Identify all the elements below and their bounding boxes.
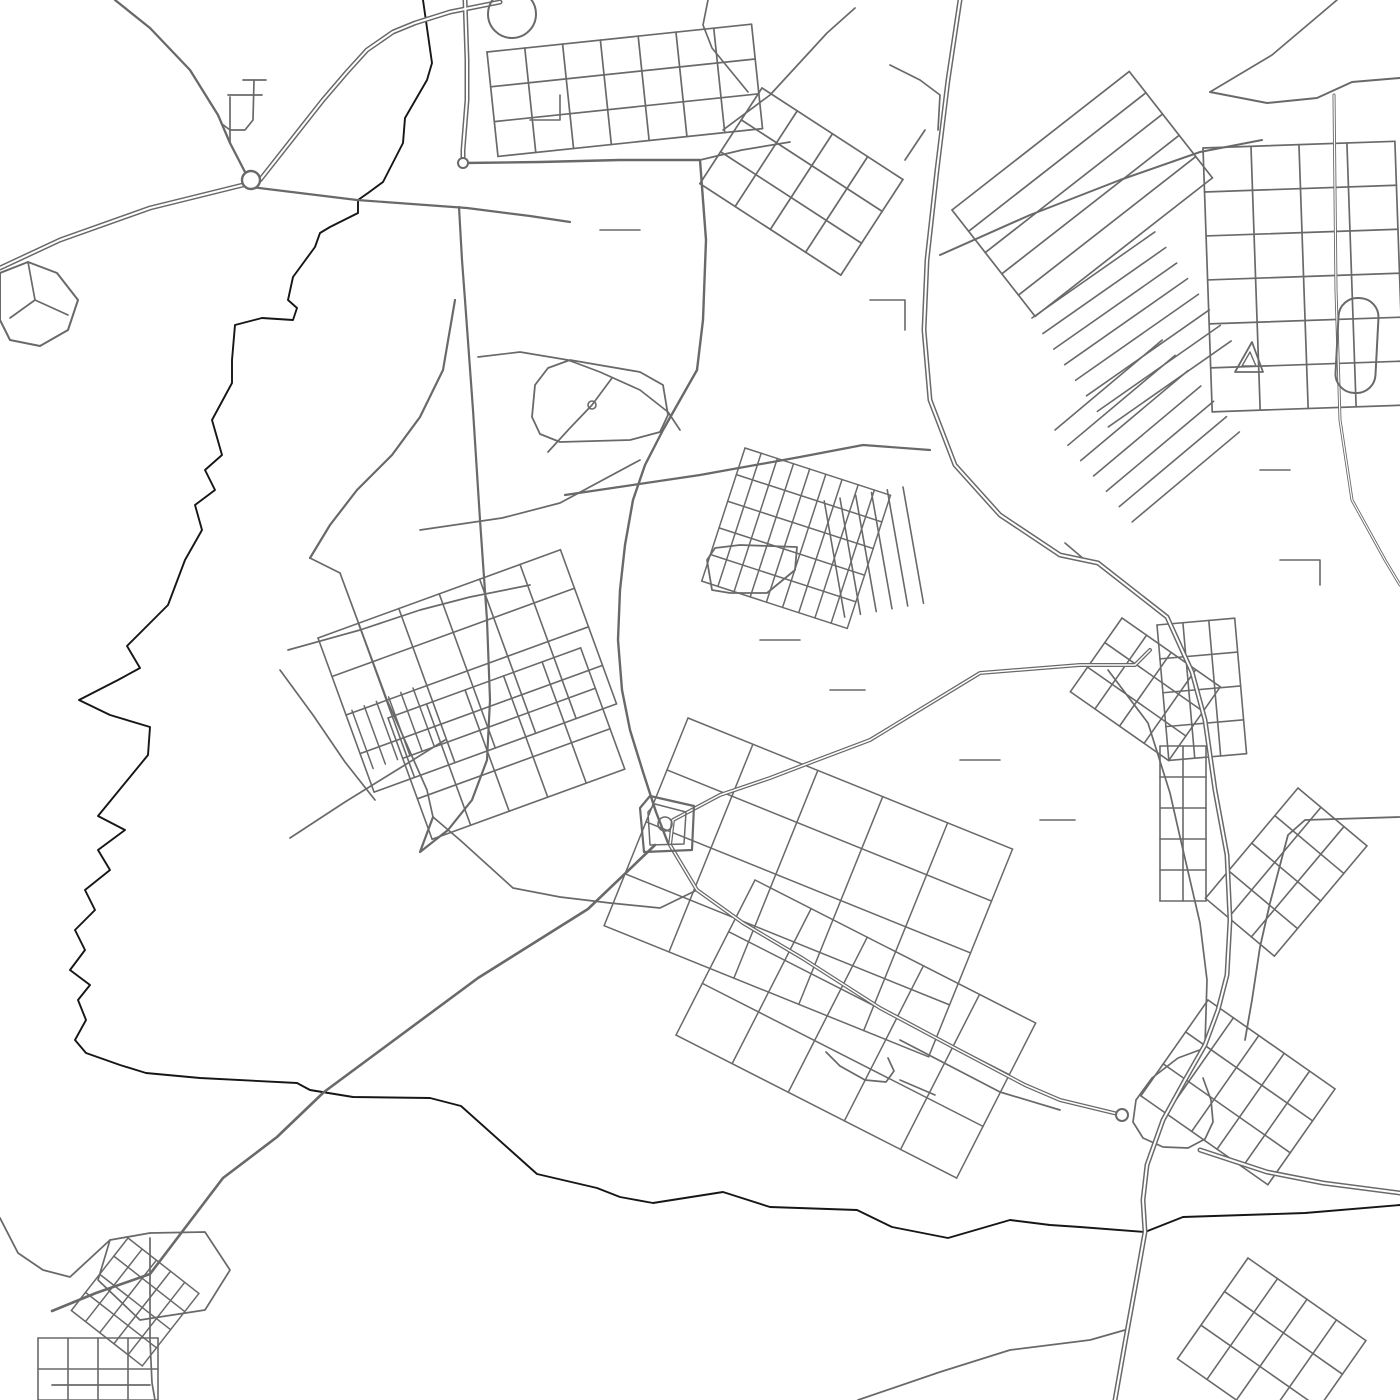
- street-grid-line: [745, 448, 891, 495]
- street-grid-line: [710, 555, 856, 602]
- street-grid-line: [1141, 1096, 1268, 1185]
- street-grid-line: [676, 1035, 957, 1178]
- minor-road: [900, 1040, 1060, 1110]
- minor-road: [940, 140, 1262, 255]
- minor-road: [723, 8, 855, 130]
- landmark-outline: [1242, 352, 1256, 366]
- street-grid-line: [1212, 405, 1400, 412]
- street-grid-line: [734, 459, 777, 592]
- minor-road: [890, 65, 940, 130]
- motorway-casing: [1334, 95, 1400, 585]
- street-grid-line: [1177, 1258, 1248, 1359]
- street-grid-line: [844, 966, 923, 1121]
- street-grid-line: [799, 480, 842, 613]
- street-grid-line: [841, 179, 903, 275]
- street-grid-line: [1002, 135, 1179, 274]
- street-grid-line: [969, 93, 1146, 232]
- street-grid-line: [736, 475, 882, 522]
- street-grid-line: [1163, 686, 1241, 693]
- street-grid-line: [1236, 1299, 1307, 1400]
- street-grid-line: [903, 487, 923, 603]
- street-grid-line: [1229, 871, 1298, 929]
- roundabout-circle: [242, 171, 260, 189]
- minor-road: [98, 1232, 230, 1320]
- major-road: [310, 300, 455, 558]
- street-grid-line: [755, 880, 1036, 1023]
- street-grid-line: [719, 528, 865, 575]
- minor-road: [703, 0, 748, 92]
- street-grid-line: [1054, 263, 1177, 349]
- street-grid-line: [86, 1292, 157, 1347]
- roundabout-circle: [488, 0, 536, 38]
- street-grid-line: [824, 501, 844, 617]
- street-grid-line: [1035, 178, 1212, 317]
- minor-road: [310, 558, 340, 573]
- street-grid-line: [376, 701, 397, 759]
- minor-road: [870, 300, 905, 330]
- street-grid-line: [714, 28, 725, 132]
- street-grid-line: [770, 134, 832, 230]
- street-grid-line: [1043, 248, 1166, 334]
- street-grid-line: [1068, 355, 1175, 445]
- street-grid-line: [1298, 788, 1367, 846]
- street-grid-line: [491, 59, 756, 87]
- street-grid-line: [1252, 843, 1321, 901]
- street-grid-line: [676, 32, 687, 136]
- street-grid-line: [1065, 279, 1188, 365]
- street-grid-line: [783, 474, 826, 607]
- street-grid-line: [806, 157, 868, 253]
- major-road: [115, 0, 245, 172]
- minor-road: [1210, 0, 1337, 92]
- city-map[interactable]: [0, 0, 1400, 1400]
- motorway-casing: [924, 0, 1230, 1400]
- street-grid-line: [718, 453, 761, 586]
- minor-road: [433, 817, 697, 908]
- street-grid-line: [952, 71, 1129, 210]
- major-road: [52, 845, 655, 1311]
- roundabout-circle: [1116, 1109, 1128, 1121]
- street-grid-line: [831, 490, 874, 623]
- street-grid-line: [732, 909, 811, 1064]
- street-grid-line: [957, 1023, 1036, 1178]
- street-grid-line: [1224, 1292, 1342, 1375]
- street-grid-line: [364, 706, 385, 764]
- minor-road: [1280, 560, 1320, 585]
- street-grid-line: [735, 111, 797, 207]
- street-grid-line: [1217, 1053, 1284, 1149]
- major-road: [463, 160, 706, 843]
- street-grid-line: [494, 94, 759, 122]
- minor-road: [1245, 817, 1400, 1040]
- street-grid-line: [700, 88, 762, 184]
- street-grid-line: [901, 994, 980, 1149]
- street-grid-line: [1248, 1258, 1366, 1341]
- street-grid-line: [766, 469, 809, 602]
- street-grid-line: [1268, 1089, 1335, 1185]
- landmark-outline: [10, 262, 35, 318]
- city-map-canvas[interactable]: [0, 0, 1400, 1400]
- landmark-outline: [707, 545, 797, 593]
- street-grid-line: [1141, 1000, 1208, 1096]
- street-grid-line: [600, 40, 611, 144]
- street-grid-line: [788, 937, 867, 1092]
- major-road: [251, 187, 570, 222]
- street-grid-line: [346, 627, 588, 715]
- street-grid-line: [1208, 1000, 1335, 1089]
- motorway-casing: [0, 185, 243, 268]
- street-grid-line: [815, 485, 858, 618]
- street-grid-line: [1076, 294, 1199, 380]
- street-grid-line: [1070, 692, 1168, 761]
- street-grid-line: [871, 493, 891, 609]
- street-grid-line: [1207, 1279, 1278, 1380]
- street-grid-line: [702, 983, 983, 1126]
- stadium-outline: [1335, 297, 1380, 394]
- street-grid-line: [318, 550, 560, 638]
- street-grid-line: [563, 44, 574, 148]
- street-grid-line: [1081, 371, 1188, 461]
- motorway-core: [1334, 95, 1400, 585]
- roundabout-circle: [458, 158, 468, 168]
- street-grid-line: [100, 1274, 171, 1329]
- minor-road: [420, 460, 640, 530]
- street-grid-line: [1132, 432, 1239, 522]
- street-grid-line: [1018, 157, 1195, 296]
- street-grid-line: [728, 501, 874, 548]
- landmark-outline: [0, 262, 78, 346]
- motorway-core: [1200, 1150, 1400, 1193]
- minor-road: [905, 130, 925, 160]
- motorway-core: [0, 185, 243, 268]
- minor-road: [858, 1330, 1125, 1400]
- street-grid-line: [887, 490, 907, 606]
- street-grid-line: [752, 24, 763, 128]
- street-grid-line: [1119, 417, 1226, 507]
- street-grid-line: [1032, 232, 1155, 318]
- landmark-outline: [35, 300, 68, 315]
- minor-road: [826, 1052, 894, 1082]
- street-grid-line: [401, 692, 422, 750]
- street-grid-line: [702, 581, 848, 628]
- minor-road: [700, 142, 790, 160]
- street-grid-line: [432, 769, 625, 839]
- minor-road: [222, 80, 254, 130]
- street-grid-line: [985, 114, 1162, 253]
- motorway-core: [924, 0, 1230, 1400]
- street-grid-line: [952, 210, 1035, 316]
- street-grid-line: [1055, 340, 1162, 430]
- minor-road: [1210, 78, 1400, 103]
- street-grid-line: [1163, 1064, 1290, 1153]
- street-grid-line: [525, 48, 536, 152]
- street-grid-line: [638, 36, 649, 140]
- street-grid-line: [1242, 1071, 1309, 1167]
- street-grid-line: [1106, 401, 1213, 491]
- street-grid-line: [487, 52, 498, 156]
- street-grid-line: [1266, 1320, 1337, 1400]
- street-grid-line: [1108, 341, 1231, 427]
- motorway-casing: [1200, 1150, 1400, 1193]
- street-grid-line: [128, 1238, 199, 1293]
